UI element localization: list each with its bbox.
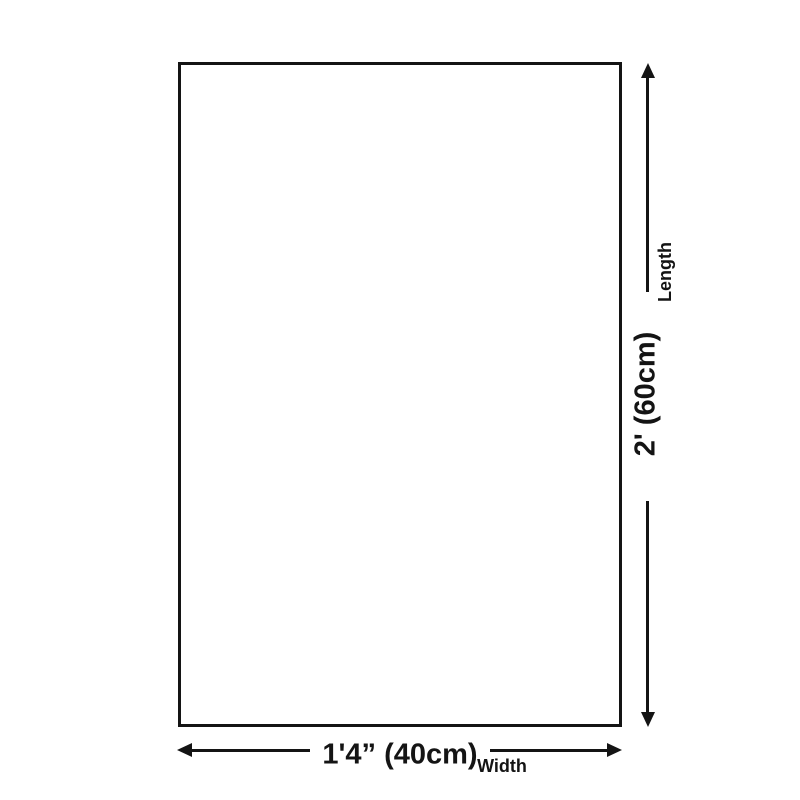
arrow-down-icon (641, 712, 655, 727)
arrow-right-icon (607, 743, 622, 757)
horizontal-dimension-line-left (191, 749, 310, 752)
vertical-dimension-line-top (646, 76, 649, 292)
length-value: 2' (60cm) (632, 332, 661, 457)
arrow-left-icon (177, 743, 192, 757)
vertical-dimension-line-bottom (646, 501, 649, 713)
horizontal-dimension-line-right (490, 749, 608, 752)
width-value: 1'4” (40cm) (322, 741, 477, 770)
product-dimension-diagram: Length 2' (60cm) 1'4” (40cm) Width (0, 0, 800, 800)
product-outline-rectangle (178, 62, 622, 727)
width-label: Width (477, 757, 527, 775)
length-label: Length (656, 242, 674, 302)
